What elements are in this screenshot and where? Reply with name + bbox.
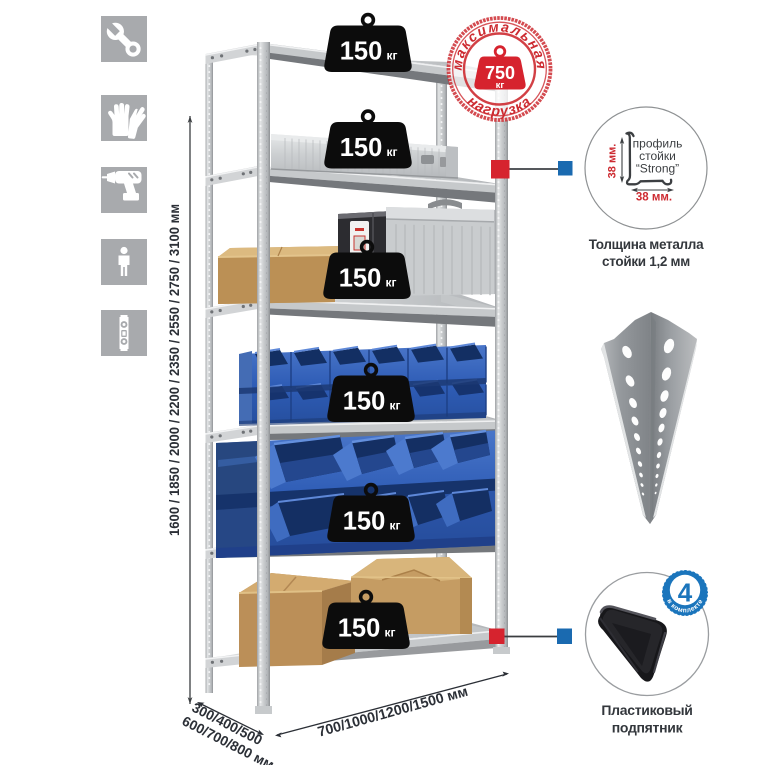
- svg-text:4: 4: [678, 578, 693, 608]
- svg-text:38 мм.: 38 мм.: [636, 192, 672, 204]
- svg-text:1600 / 1850 / 2000 / 2200 / 23: 1600 / 1850 / 2000 / 2200 / 2350 / 2550 …: [166, 204, 182, 536]
- svg-text:Толщина металла: Толщина металла: [589, 237, 704, 252]
- svg-text:подпятник: подпятник: [612, 720, 684, 736]
- svg-text:стойки 1,2 мм: стойки 1,2 мм: [602, 254, 690, 269]
- svg-text:Пластиковый: Пластиковый: [601, 702, 692, 718]
- svg-text:38 мм.: 38 мм.: [607, 144, 619, 179]
- svg-text:“Strong”: “Strong”: [636, 162, 679, 176]
- svg-text:кг: кг: [496, 80, 505, 91]
